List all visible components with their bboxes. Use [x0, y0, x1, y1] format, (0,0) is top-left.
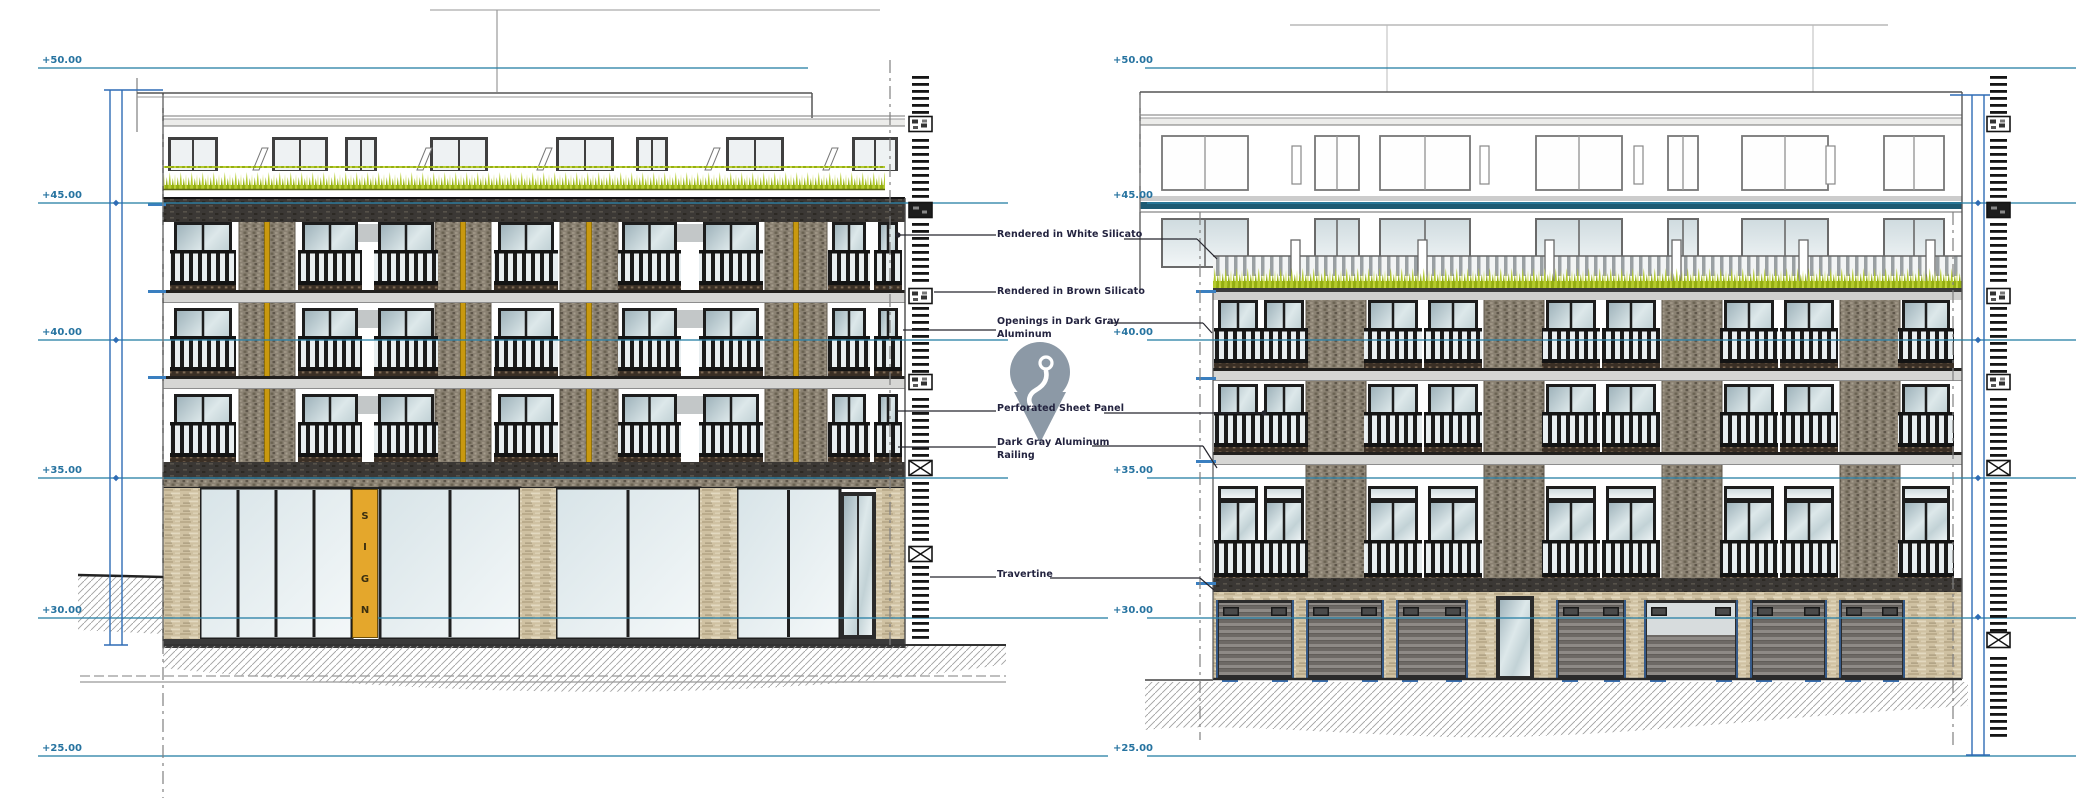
- sign-panel: S I G N: [352, 489, 378, 638]
- elevation-label-right-4: +30.00: [1113, 605, 1153, 616]
- sign-letter: I: [363, 542, 367, 553]
- elevation-label-left-3: +35.00: [42, 465, 82, 476]
- elevation-label-right-5: +25.00: [1113, 743, 1153, 754]
- elevation-label-right-1: +45.00: [1113, 190, 1153, 201]
- elevation-label-right-2: +40.00: [1113, 327, 1153, 338]
- elevation-label-left-1: +45.00: [42, 190, 82, 201]
- elevation-drawing-page: Rendered in White Silicato Rendered in B…: [0, 0, 2080, 800]
- right-building-elevation: [1140, 25, 1962, 682]
- annotation-label: Rendered in Brown Silicato: [997, 286, 1145, 299]
- annotation-label: Dark Gray Aluminum Railing: [997, 437, 1109, 462]
- building-elevation-drawing: [0, 0, 2080, 800]
- elevation-label-right-0: +50.00: [1113, 55, 1153, 66]
- left-building-elevation: [137, 10, 905, 648]
- elevation-label-left-2: +40.00: [42, 327, 82, 338]
- elevation-label-left-5: +25.00: [42, 743, 82, 754]
- elevation-label-right-3: +35.00: [1113, 465, 1153, 476]
- sign-letter: G: [361, 574, 369, 585]
- elevation-label-left-4: +30.00: [42, 605, 82, 616]
- annotation-label: Perforated Sheet Panel: [997, 403, 1124, 416]
- sign-letter: N: [361, 605, 369, 616]
- elevation-label-left-0: +50.00: [42, 55, 82, 66]
- right-level-ruler: [1987, 76, 2010, 737]
- left-level-ruler: [909, 76, 932, 639]
- annotation-label: Rendered in White Silicato: [997, 229, 1142, 242]
- annotation-label: Openings in Dark Gray Aluminum: [997, 316, 1120, 341]
- annotation-label: Travertine: [997, 569, 1053, 582]
- sign-letter: S: [361, 511, 368, 522]
- location-pin-icon[interactable]: [1010, 342, 1070, 443]
